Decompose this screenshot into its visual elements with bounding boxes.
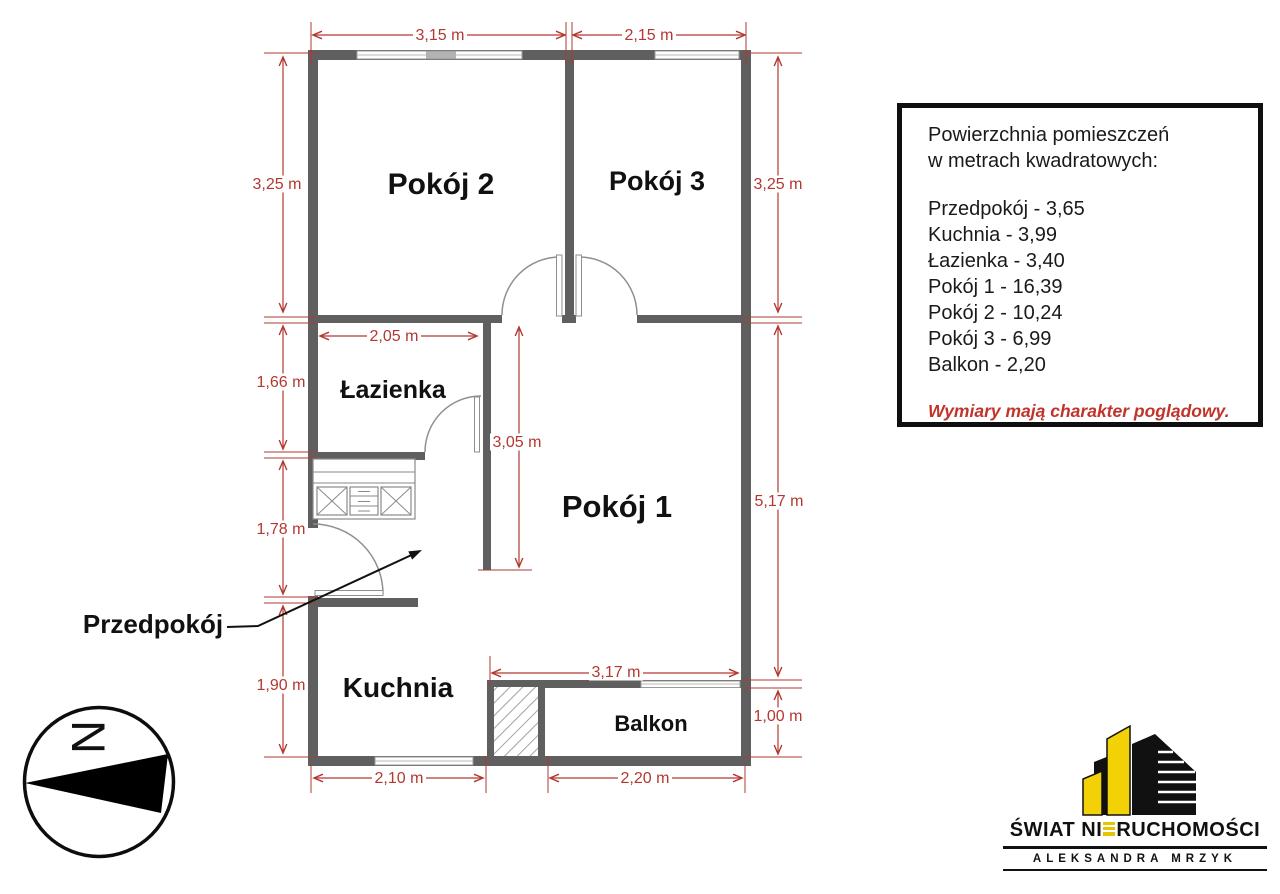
entrance-arrow-head xyxy=(408,546,424,560)
wall-rooms-bottom-right xyxy=(637,315,741,323)
info-title-line2: w metrach kwadratowych: xyxy=(928,148,1242,174)
dim-label-bottom-right: 2,20 m xyxy=(618,770,672,788)
wall-shaft-right xyxy=(538,680,545,756)
logo-building-yellow-tall xyxy=(1107,726,1130,815)
logo-rule-bottom xyxy=(1003,869,1267,872)
dim-label-left-2: 1,66 m xyxy=(254,374,308,392)
logo-brand-prefix: ŚWIAT NI xyxy=(1010,819,1103,841)
room-label-lazienka: Łazienka xyxy=(340,376,447,404)
logo-rule-top xyxy=(1003,846,1267,849)
wall-room-divider xyxy=(565,60,574,323)
wall-hall-kitchen-divider xyxy=(308,598,418,607)
dimension-lines xyxy=(283,35,778,778)
wall-hall-vertical xyxy=(483,323,491,570)
info-disclaimer: Wymiary mają charakter poglądowy. xyxy=(928,398,1242,424)
svg-text:1,90 m: 1,90 m xyxy=(257,677,306,694)
wall-rooms-bottom-stub xyxy=(562,315,576,323)
info-row-pokoj3: Pokój 3 - 6,99 xyxy=(928,326,1242,352)
dim-label-right-3: 1,00 m xyxy=(751,708,805,726)
door-arc-room2 xyxy=(502,257,560,315)
wall-right xyxy=(741,50,751,766)
info-row-pokoj1: Pokój 1 - 16,39 xyxy=(928,274,1242,300)
logo-brand-suffix: RUCHOMOŚCI xyxy=(1116,819,1260,841)
window-room2-mullion xyxy=(426,52,456,59)
dim-label-top-left: 3,15 m xyxy=(413,27,467,45)
wall-shaft-top xyxy=(487,680,545,687)
dim-label-left-3: 1,78 m xyxy=(254,521,308,539)
svg-text:3,25 m: 3,25 m xyxy=(754,176,803,193)
dim-label-hall: 3,05 m xyxy=(490,434,544,452)
logo-stylized-e-icon xyxy=(1103,822,1115,836)
dim-label-top-right: 2,15 m xyxy=(622,27,676,45)
door-leaf-room3 xyxy=(576,255,582,316)
svg-text:1,78 m: 1,78 m xyxy=(257,521,306,538)
room-label-pokoj3: Pokój 3 xyxy=(609,166,705,196)
info-row-pokoj2: Pokój 2 - 10,24 xyxy=(928,300,1242,326)
floor-plan-page: 3,15 m 2,15 m 3,25 m 1,66 m 1,78 m 1,90 … xyxy=(0,0,1280,894)
wall-left-lower xyxy=(308,596,318,766)
svg-text:2,05 m: 2,05 m xyxy=(370,328,419,345)
svg-text:1,00 m: 1,00 m xyxy=(754,708,803,725)
svg-text:5,17 m: 5,17 m xyxy=(755,493,804,510)
dim-label-left-1: 3,25 m xyxy=(250,176,304,194)
door-arc-bathroom xyxy=(425,396,481,452)
wall-bottom xyxy=(308,756,751,766)
cabinet xyxy=(313,459,415,519)
svg-text:2,10 m: 2,10 m xyxy=(375,770,424,787)
info-row-balkon: Balkon - 2,20 xyxy=(928,352,1242,378)
info-row-kuchnia: Kuchnia - 3,99 xyxy=(928,222,1242,248)
door-arc-room3 xyxy=(579,257,637,315)
svg-text:3,25 m: 3,25 m xyxy=(253,176,302,193)
windows xyxy=(357,51,740,765)
svg-text:3,05 m: 3,05 m xyxy=(493,434,542,451)
dim-label-left-4: 1,90 m xyxy=(254,677,308,695)
room-label-pokoj1: Pokój 1 xyxy=(562,489,672,524)
svg-text:2,20 m: 2,20 m xyxy=(621,770,670,787)
entrance-arrow xyxy=(227,546,424,627)
logo-building-yellow-small xyxy=(1083,771,1102,815)
info-row-lazienka: Łazienka - 3,40 xyxy=(928,248,1242,274)
svg-text:3,15 m: 3,15 m xyxy=(416,27,465,44)
compass-north-letter: N xyxy=(62,720,115,754)
info-row-przedpokoj: Przedpokój - 3,65 xyxy=(928,196,1242,222)
wall-rooms-bottom-left xyxy=(318,315,502,323)
door-leaf-bathroom xyxy=(475,397,480,452)
info-gap xyxy=(928,174,1242,196)
wall-shaft-left xyxy=(487,680,494,756)
dim-label-right-1: 3,25 m xyxy=(751,176,805,194)
wall-left-upper xyxy=(308,50,318,528)
utility-shaft-hatch xyxy=(494,687,538,756)
room-labels: Pokój 2 Pokój 3 Łazienka Pokój 1 Przedpo… xyxy=(83,166,705,736)
room-label-przedpokoj: Przedpokój xyxy=(83,609,223,639)
logo-brand: ŚWIAT NIRUCHOMOŚCI xyxy=(1003,819,1267,842)
area-info-box: Powierzchnia pomieszczeń w metrach kwadr… xyxy=(897,103,1263,427)
dim-label-bottom-left: 2,10 m xyxy=(372,770,426,788)
doors xyxy=(313,255,637,596)
walls xyxy=(308,50,751,766)
svg-text:3,17 m: 3,17 m xyxy=(592,664,641,681)
info-title-line1: Powierzchnia pomieszczeń xyxy=(928,122,1242,148)
dim-label-right-2: 5,17 m xyxy=(752,493,806,511)
room-label-pokoj2: Pokój 2 xyxy=(388,168,495,201)
compass: N xyxy=(25,708,174,857)
dim-label-bath: 2,05 m xyxy=(367,328,421,346)
logo-building-icon xyxy=(1083,726,1196,815)
svg-text:2,15 m: 2,15 m xyxy=(625,27,674,44)
logo-subtitle: ALEKSANDRA MRZYK xyxy=(1003,853,1267,865)
svg-text:1,66 m: 1,66 m xyxy=(257,374,306,391)
logo-text-block: ŚWIAT NIRUCHOMOŚCI ALEKSANDRA MRZYK xyxy=(1003,819,1267,875)
door-leaf-room2 xyxy=(557,255,563,316)
room-label-balkon: Balkon xyxy=(614,711,687,736)
dim-label-balcony-top: 3,17 m xyxy=(589,664,643,682)
room-label-kuchnia: Kuchnia xyxy=(343,672,454,703)
